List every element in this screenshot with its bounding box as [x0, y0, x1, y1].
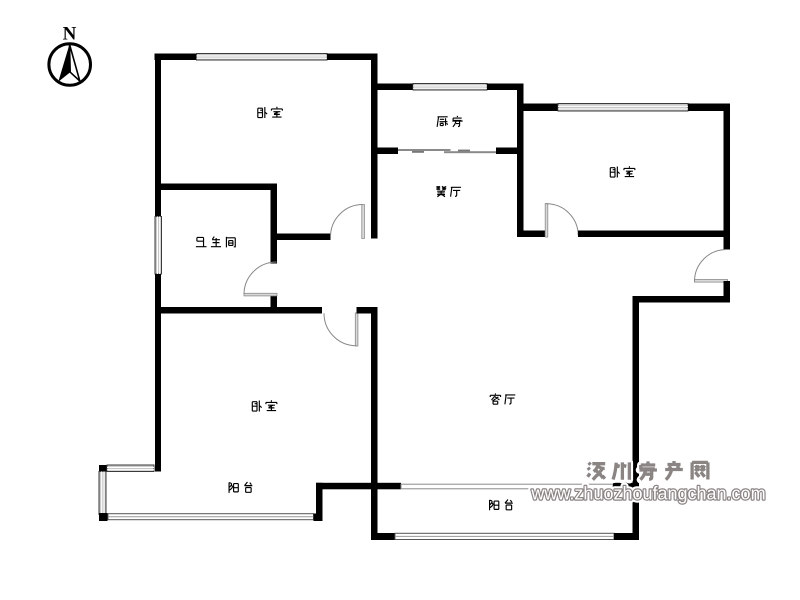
- svg-text:www.zhuozhoufangchan.com: www.zhuozhoufangchan.com: [530, 484, 765, 504]
- svg-text:N: N: [63, 24, 77, 45]
